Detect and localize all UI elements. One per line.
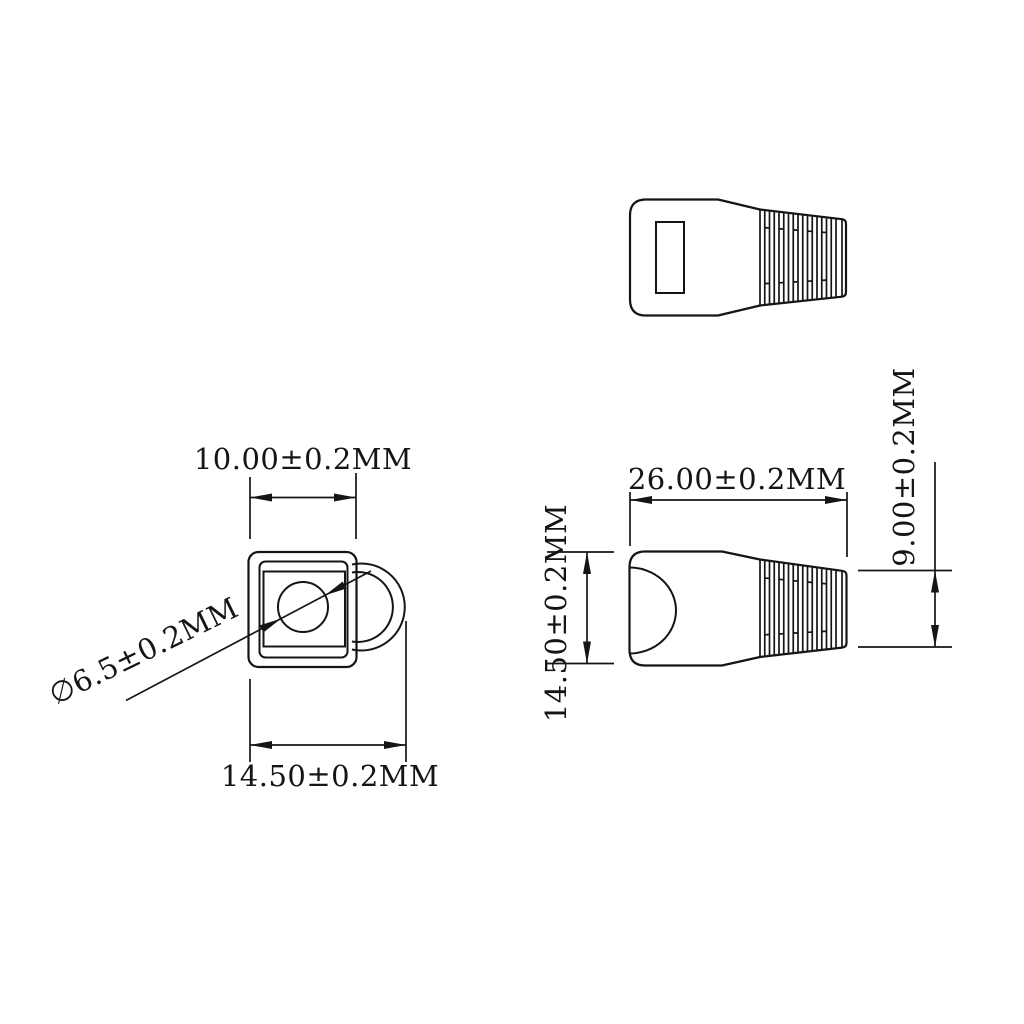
side-view bbox=[630, 552, 847, 666]
side-view-ribs bbox=[760, 560, 842, 658]
arrowhead-top bbox=[583, 552, 591, 574]
top-view bbox=[630, 200, 846, 316]
arrowhead-top bbox=[931, 571, 939, 593]
technical-drawing-canvas: 10.00±0.2MM 14.50±0.2MM ∅6.5±0.2MM 26.00… bbox=[0, 0, 1024, 1024]
arrowhead-right bbox=[825, 496, 847, 504]
arrowhead-right bbox=[334, 494, 356, 502]
end-view bbox=[249, 552, 405, 667]
dim-label-tail-height: 9.00±0.2MM bbox=[887, 367, 921, 566]
arrowhead-bottom bbox=[931, 625, 939, 647]
dim-label-hole-diameter: ∅6.5±0.2MM bbox=[44, 591, 244, 712]
drawing-sheet: 10.00±0.2MM 14.50±0.2MM ∅6.5±0.2MM 26.00… bbox=[0, 0, 1024, 1024]
side-view-outline bbox=[630, 552, 847, 666]
arrowhead-left bbox=[630, 496, 652, 504]
top-view-slot bbox=[656, 222, 684, 293]
dimension-side-view-height: 14.50±0.2MM bbox=[539, 504, 614, 722]
top-view-ribs bbox=[760, 210, 842, 306]
end-view-bulge-inner-arc bbox=[352, 572, 393, 642]
dimension-end-view-top-width: 10.00±0.2MM bbox=[194, 442, 412, 539]
dim-label-side-height: 14.50±0.2MM bbox=[539, 504, 573, 722]
dim-label-side-length: 26.00±0.2MM bbox=[628, 462, 846, 496]
side-view-opening-arc bbox=[630, 568, 677, 654]
arrowhead-upper-right bbox=[325, 582, 346, 596]
end-view-outer-body bbox=[249, 552, 357, 667]
arrowhead-bottom bbox=[583, 642, 591, 664]
dim-label-end-top-width: 10.00±0.2MM bbox=[194, 442, 412, 476]
dimension-tail-height: 9.00±0.2MM bbox=[858, 367, 952, 647]
dimension-side-view-length: 26.00±0.2MM bbox=[628, 462, 847, 557]
arrowhead-left bbox=[250, 741, 272, 749]
arrowhead-right bbox=[384, 741, 406, 749]
arrowhead-left bbox=[250, 494, 272, 502]
end-view-inner-frame bbox=[260, 562, 348, 658]
dim-label-end-overall-width: 14.50±0.2MM bbox=[221, 759, 439, 793]
top-view-outline bbox=[630, 200, 846, 316]
